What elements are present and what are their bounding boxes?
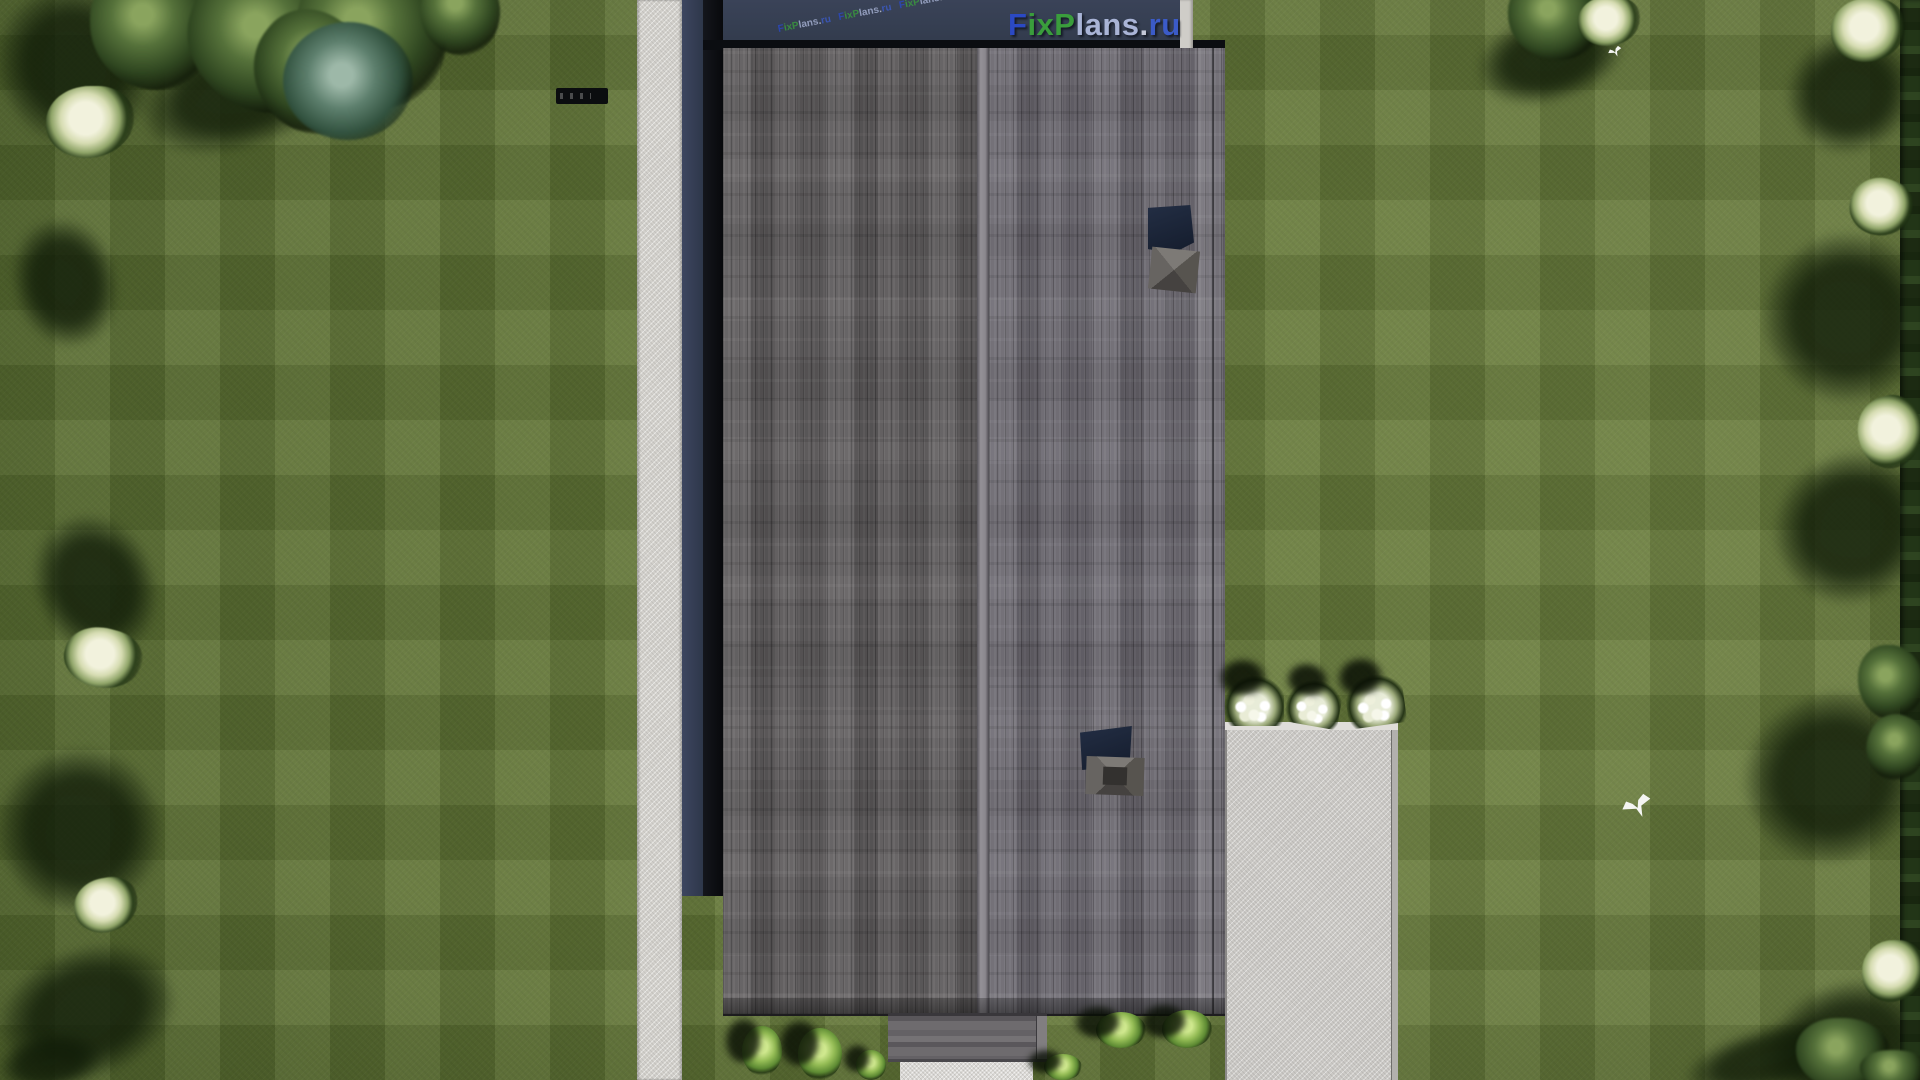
bush xyxy=(1162,1010,1212,1048)
bush xyxy=(798,1028,842,1080)
flower xyxy=(1224,676,1284,726)
aerial-site-view: FixPlans.ru FixPlans.ru FixPlans.ru FixP… xyxy=(0,0,1920,1080)
bush xyxy=(856,1050,886,1080)
watermark-letters-lans: lans xyxy=(1075,7,1139,42)
conifer-tree xyxy=(283,22,413,140)
fixplans-watermark: FixPlans.ru xyxy=(1008,7,1181,43)
flower xyxy=(1283,676,1344,731)
flowering-tree xyxy=(1862,940,1920,1002)
watermark-letter-f: F xyxy=(1008,7,1027,42)
flowering-tree xyxy=(1578,0,1640,46)
scenery-layer xyxy=(0,0,1920,1080)
watermark-letters-ix: ix xyxy=(1027,7,1054,42)
flower xyxy=(1343,670,1408,730)
bush xyxy=(1044,1054,1082,1080)
hedge xyxy=(1900,0,1920,1080)
tree-shadow xyxy=(1,209,130,356)
flowering-tree xyxy=(46,86,134,158)
watermark-letters-ru: ru xyxy=(1149,7,1181,42)
watermark-dot: . xyxy=(1140,7,1149,42)
watermark-letter-p: P xyxy=(1054,7,1075,42)
flying-bird xyxy=(1619,790,1655,822)
bush xyxy=(742,1026,782,1076)
tree-canopy xyxy=(1860,1050,1920,1080)
